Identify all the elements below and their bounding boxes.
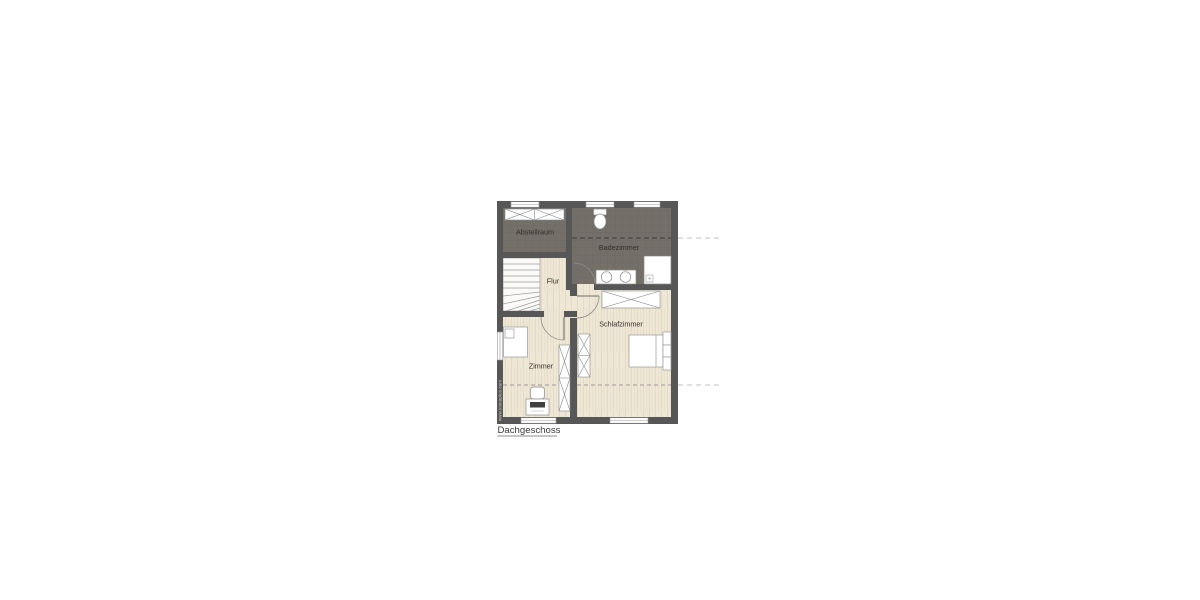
bed-icon-zimmer [504,327,528,357]
interior-wall-zimmer-north-right [564,311,577,317]
window-bad-top-left [586,202,614,207]
floor-title: Dachgeschoss [498,425,561,436]
badezimmer-label: Badezimmer [599,243,640,252]
interior-wall-bad-south [594,284,671,290]
exterior-wall-right [671,201,678,424]
window-zimmer-bottom [521,418,556,423]
bed-icon-schlafzimmer [629,332,671,370]
wardrobe-icon-zimmer-east [559,345,570,411]
floor-title-group: Dachgeschoss [498,425,561,436]
watermark-text: www.immoplus.com [498,380,503,421]
schlafzimmer-label: Schlafzimmer [599,320,643,329]
closet-icon-abstellraum [505,209,564,220]
interior-wall-schlafzimmer-west-lower [570,318,577,417]
window-abstellraum-top [511,202,539,207]
floorplan-canvas: Abstellraum Badezimmer Flur Schlafzimmer… [0,0,1200,600]
window-zimmer-left [497,332,502,360]
laptop-icon [530,402,545,408]
desk-icon [526,399,549,415]
pillow [505,329,514,338]
nightstand [663,357,671,370]
window-bad-top-right [634,202,660,207]
interior-wall-abstellraum-south [497,252,566,258]
chair-icon [531,387,545,399]
stairs-icon [503,258,540,311]
shower-icon [644,256,671,284]
window-schlafzimmer-bottom [610,418,648,423]
flur-label: Flur [547,277,560,286]
pillow [663,332,671,345]
zimmer-door-threshold [544,311,564,317]
double-sink-icon [596,270,636,284]
zimmer-label: Zimmer [529,362,554,371]
interior-wall-schlafzimmer-west-upper [570,284,577,296]
abstellraum-label: Abstellraum [516,228,554,237]
pillow [663,345,671,357]
wardrobe-icon-schlafzimmer-west [578,334,590,377]
toilet-icon [594,209,607,229]
interior-wall-bad-west [566,208,572,290]
wardrobe-icon-schlafzimmer-north [602,291,660,308]
floorplan-page: Abstellraum Badezimmer Flur Schlafzimmer… [0,0,1200,600]
interior-wall-zimmer-north-left [497,311,544,317]
